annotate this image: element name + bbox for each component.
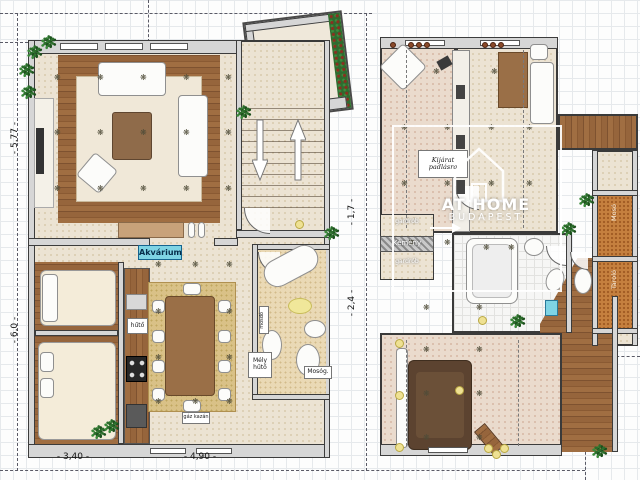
basin-text: mosdó bbox=[260, 312, 268, 329]
flower-icon: ❋ bbox=[491, 69, 498, 75]
aquarium-label: Akvárium bbox=[138, 245, 182, 260]
bed-pillow bbox=[40, 352, 54, 372]
wall-living-hall bbox=[28, 238, 150, 246]
plant-icon: ✻ bbox=[42, 36, 55, 48]
basin-label: mosdó bbox=[259, 306, 269, 334]
flower-icon: ❋ bbox=[54, 130, 61, 136]
dash-line-mid bbox=[366, 13, 367, 471]
dim-left-lower: - 6,0 - bbox=[10, 307, 20, 353]
wall-bath-bottom bbox=[252, 394, 330, 400]
hall-wall-right bbox=[612, 296, 618, 452]
terrace-hedge bbox=[328, 13, 352, 110]
plant-icon: ✻ bbox=[20, 64, 33, 76]
flower-icon: ❋ bbox=[423, 347, 430, 353]
wall-living-hall bbox=[214, 238, 238, 246]
lamp-icon bbox=[500, 444, 509, 453]
flower-icon: ❋ bbox=[97, 130, 104, 136]
wall-bedroom-divider bbox=[35, 330, 118, 336]
window bbox=[60, 43, 98, 50]
roofdot-icon bbox=[416, 42, 422, 48]
dash-line-left bbox=[17, 13, 18, 471]
tv-stand bbox=[530, 44, 548, 60]
cabinet-item bbox=[456, 85, 465, 99]
bath-rug bbox=[288, 298, 312, 314]
wall-stairs-bottom bbox=[236, 230, 330, 238]
flower-icon: ❋ bbox=[155, 262, 162, 268]
water-heater bbox=[545, 300, 558, 316]
storage-text: Tároló bbox=[610, 270, 618, 289]
flower-icon: ❋ bbox=[226, 399, 233, 405]
aquarium-text: Akvárium bbox=[139, 248, 182, 257]
sideboard bbox=[118, 222, 184, 238]
floorplan-canvas: Akvárium hűtő gáz kazán mosdó Mély hűtő … bbox=[0, 0, 640, 480]
laundry-text: Mosó bbox=[610, 204, 618, 221]
window bbox=[428, 447, 468, 453]
sofa bbox=[98, 62, 166, 96]
boiler-text: gáz kazán bbox=[183, 415, 209, 421]
dash-line-left-short bbox=[0, 42, 28, 43]
boiler-label: gáz kazán bbox=[182, 412, 210, 424]
flower-icon: ❋ bbox=[192, 399, 199, 405]
wall-bedroom-kitchen bbox=[118, 262, 124, 444]
flower-icon: ❋ bbox=[226, 262, 233, 268]
flower-icon: ❋ bbox=[54, 75, 61, 81]
washer-label: Mosóg. bbox=[304, 366, 332, 379]
kitchen-sink bbox=[126, 294, 147, 310]
tv bbox=[36, 128, 44, 174]
stairs-arrow-down-icon bbox=[252, 118, 268, 184]
dining-chair bbox=[218, 330, 231, 343]
roof-slope-line bbox=[406, 340, 407, 446]
lamp-icon bbox=[295, 220, 304, 229]
washbasin bbox=[304, 320, 326, 338]
dim-mid-upper: - 1,7 - bbox=[347, 189, 357, 235]
dim-mid-lower: - 2,4 - bbox=[347, 280, 357, 326]
washer-text: Mosóg. bbox=[305, 369, 331, 376]
plant-icon: ✻ bbox=[325, 227, 338, 239]
flower-icon: ❋ bbox=[183, 130, 190, 136]
stove bbox=[126, 356, 147, 382]
plant-icon: ✻ bbox=[105, 420, 118, 432]
freezer-text-2: hűtő bbox=[249, 365, 271, 372]
flower-icon: ❋ bbox=[54, 186, 61, 192]
roofdot-icon bbox=[424, 42, 430, 48]
dining-chair bbox=[183, 283, 201, 295]
plant-icon: ✻ bbox=[511, 315, 524, 327]
fridge-text: hűtő bbox=[128, 323, 147, 330]
flower-icon: ❋ bbox=[140, 186, 147, 192]
flower-icon: ❋ bbox=[183, 186, 190, 192]
dim-text: - 6,0 - bbox=[10, 317, 20, 344]
flower-icon: ❋ bbox=[225, 186, 232, 192]
sofa bbox=[530, 62, 554, 124]
flower-icon: ❋ bbox=[140, 130, 147, 136]
dim-bottom-left: - 3,40 - bbox=[50, 452, 96, 462]
flower-icon: ❋ bbox=[423, 391, 430, 397]
dim-bottom-right: - 4,90 - bbox=[177, 452, 223, 462]
laundry-room: Mosó bbox=[598, 196, 632, 258]
watermark-arrow-icon bbox=[428, 222, 462, 234]
flower-icon: ❋ bbox=[226, 355, 233, 361]
flower-icon: ❋ bbox=[476, 347, 483, 353]
toilet bbox=[574, 268, 592, 294]
roof-slope-line bbox=[518, 340, 519, 446]
flower-icon: ❋ bbox=[476, 391, 483, 397]
flower-icon: ❋ bbox=[423, 305, 430, 311]
flower-icon: ❋ bbox=[97, 75, 104, 81]
dim-text: - 5,77 - bbox=[10, 122, 20, 154]
plant-icon: ✻ bbox=[593, 445, 606, 457]
dash-line-top-short bbox=[148, 0, 149, 42]
fridge-label: hűtő bbox=[127, 318, 148, 334]
wing-hall-floor bbox=[558, 114, 638, 150]
plant-icon: ✻ bbox=[562, 223, 575, 235]
roofdot-icon bbox=[482, 42, 488, 48]
plant-icon: ✻ bbox=[237, 106, 250, 118]
window bbox=[150, 43, 188, 50]
flower-icon: ❋ bbox=[476, 435, 483, 441]
flower-icon: ❋ bbox=[183, 75, 190, 81]
flower-icon: ❋ bbox=[225, 130, 232, 136]
dim-text: - 1,7 - bbox=[347, 199, 357, 226]
dim-text: - 2,4 - bbox=[347, 290, 357, 317]
dim-left-upper: - 5,77 - bbox=[10, 115, 20, 161]
lamp-icon bbox=[395, 391, 404, 400]
lamp-icon bbox=[395, 339, 404, 348]
lamp-icon bbox=[492, 450, 501, 459]
dining-chair bbox=[152, 330, 165, 343]
dishwasher bbox=[126, 404, 147, 428]
plant-icon: ✻ bbox=[28, 46, 41, 58]
flower-icon: ❋ bbox=[155, 355, 162, 361]
dash-line-bottom bbox=[0, 470, 585, 471]
wall-wc bbox=[566, 233, 572, 333]
plant-icon: ✻ bbox=[92, 426, 105, 438]
window bbox=[105, 43, 143, 50]
flower-icon: ❋ bbox=[140, 75, 147, 81]
lamp-icon bbox=[395, 443, 404, 452]
wing-wall-right bbox=[632, 150, 638, 346]
flower-icon: ❋ bbox=[97, 186, 104, 192]
flower-icon: ❋ bbox=[433, 69, 440, 75]
flower-icon: ❋ bbox=[423, 435, 430, 441]
flower-icon: ❋ bbox=[226, 309, 233, 315]
flower-icon: ❋ bbox=[225, 75, 232, 81]
flower-icon: ❋ bbox=[155, 309, 162, 315]
flower-icon: ❋ bbox=[155, 399, 162, 405]
lamp-icon bbox=[478, 316, 487, 325]
roofdot-icon bbox=[490, 42, 496, 48]
bed-pillow bbox=[42, 274, 58, 322]
terrace-wall-top bbox=[245, 13, 337, 32]
pillar bbox=[198, 222, 205, 238]
roofdot-icon bbox=[390, 42, 396, 48]
dim-text: - 3,40 - bbox=[57, 452, 89, 462]
dining-table bbox=[165, 296, 215, 396]
bed-pillow bbox=[40, 378, 54, 398]
lamp-icon bbox=[455, 386, 464, 395]
roofdot-icon bbox=[408, 42, 414, 48]
plant-icon: ✻ bbox=[22, 86, 35, 98]
pillar bbox=[188, 222, 195, 238]
flower-icon: ❋ bbox=[476, 305, 483, 311]
roofdot-icon bbox=[498, 42, 504, 48]
plant-icon: ✻ bbox=[580, 194, 593, 206]
flower-icon: ❋ bbox=[192, 262, 199, 268]
stairs-arrow-up-icon bbox=[290, 118, 306, 184]
freezer-label: Mély hűtő bbox=[248, 352, 272, 378]
dim-text: - 4,90 - bbox=[184, 452, 216, 462]
bed-cover bbox=[416, 372, 464, 438]
